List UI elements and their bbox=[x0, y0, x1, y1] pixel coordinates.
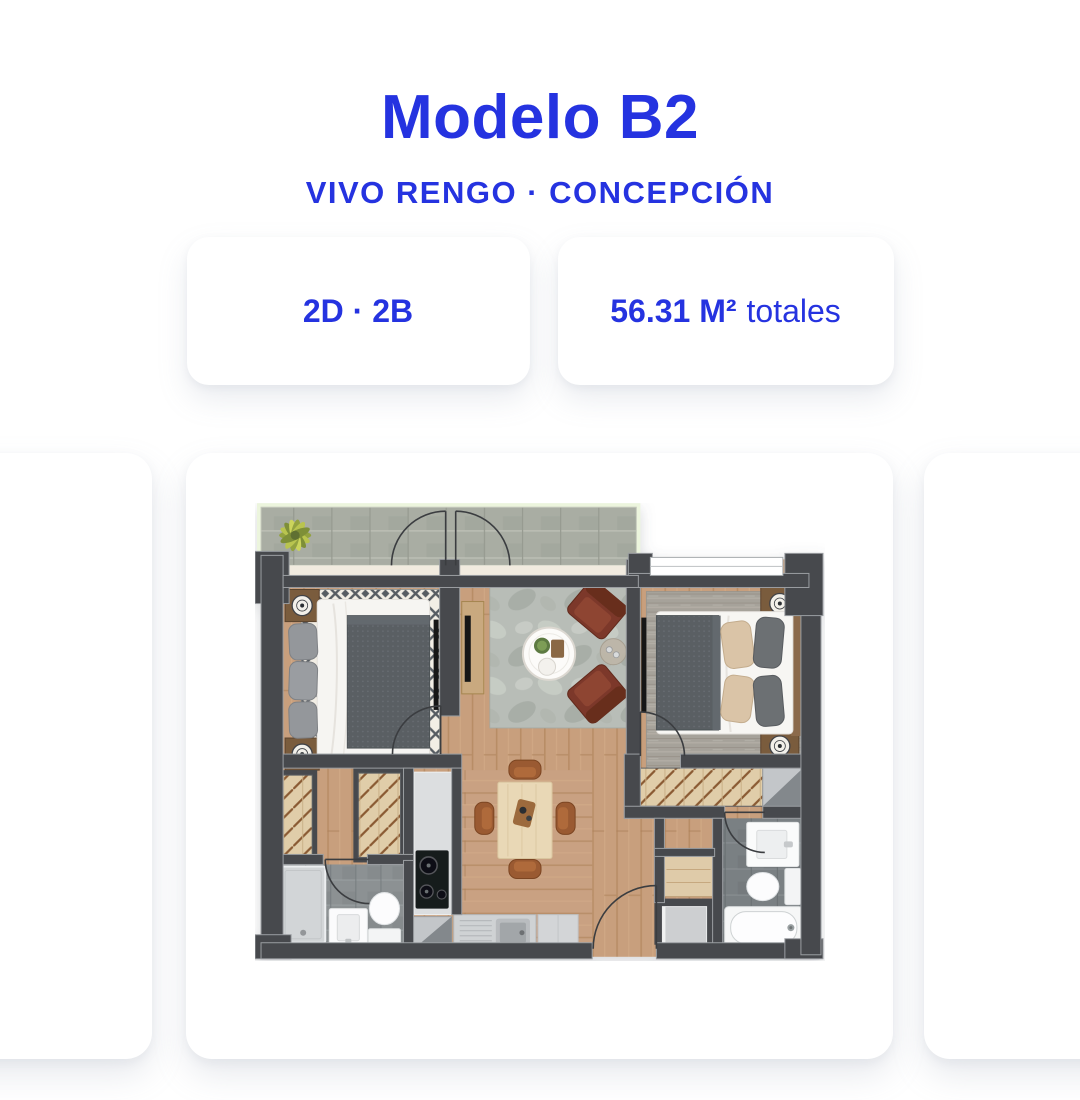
shelf-niche bbox=[664, 856, 712, 896]
floor-plan-carousel bbox=[0, 453, 1080, 1059]
wardrobe-hatch-icon bbox=[358, 773, 400, 857]
chair-icon bbox=[508, 859, 540, 878]
carousel-card-previous[interactable] bbox=[0, 453, 152, 1059]
bedroom-2 bbox=[641, 587, 801, 776]
carousel-card-floor-plan[interactable] bbox=[186, 453, 893, 1059]
double-bed-icon bbox=[656, 610, 801, 736]
double-bed-icon bbox=[288, 600, 429, 761]
floor-plan bbox=[255, 503, 823, 959]
tv-icon bbox=[464, 616, 470, 682]
page-title: Modelo B2 bbox=[0, 0, 1080, 153]
coffee-table-icon bbox=[522, 628, 574, 680]
page-subtitle: VIVO RENGO · CONCEPCIÓN bbox=[0, 175, 1080, 211]
carousel-card-next[interactable] bbox=[924, 453, 1080, 1059]
bedroom-1 bbox=[285, 590, 440, 771]
lamp-icon bbox=[292, 596, 312, 616]
cooktop-icon bbox=[415, 850, 448, 908]
tv-icon bbox=[641, 618, 646, 712]
badge-area: 56.31 M² totales bbox=[558, 237, 894, 385]
wardrobe-hatch-icon bbox=[640, 768, 762, 806]
side-table-icon bbox=[600, 639, 626, 665]
spec-badges: 2D · 2B 56.31 M² totales bbox=[0, 237, 1080, 385]
washbasin-icon bbox=[746, 822, 798, 866]
model-page: Modelo B2 VIVO RENGO · CONCEPCIÓN 2D · 2… bbox=[0, 0, 1080, 1100]
dining-table-icon bbox=[497, 782, 551, 858]
chair-icon bbox=[474, 802, 493, 834]
window bbox=[650, 557, 782, 575]
tv-icon bbox=[433, 620, 438, 710]
lamp-icon bbox=[769, 736, 789, 756]
area-suffix: totales bbox=[747, 293, 841, 330]
washbasin-icon bbox=[329, 909, 367, 947]
bathroom-1 bbox=[279, 864, 403, 946]
area-value: 56.31 M² bbox=[610, 293, 736, 330]
badge-typology: 2D · 2B bbox=[187, 237, 530, 385]
chair-icon bbox=[556, 802, 575, 834]
laundry-storage bbox=[662, 907, 706, 945]
shower-icon bbox=[281, 866, 325, 942]
typology-label: 2D · 2B bbox=[303, 293, 413, 330]
toilet-icon bbox=[368, 893, 400, 946]
chair-icon bbox=[508, 760, 540, 779]
floor-plan-image bbox=[255, 503, 825, 961]
